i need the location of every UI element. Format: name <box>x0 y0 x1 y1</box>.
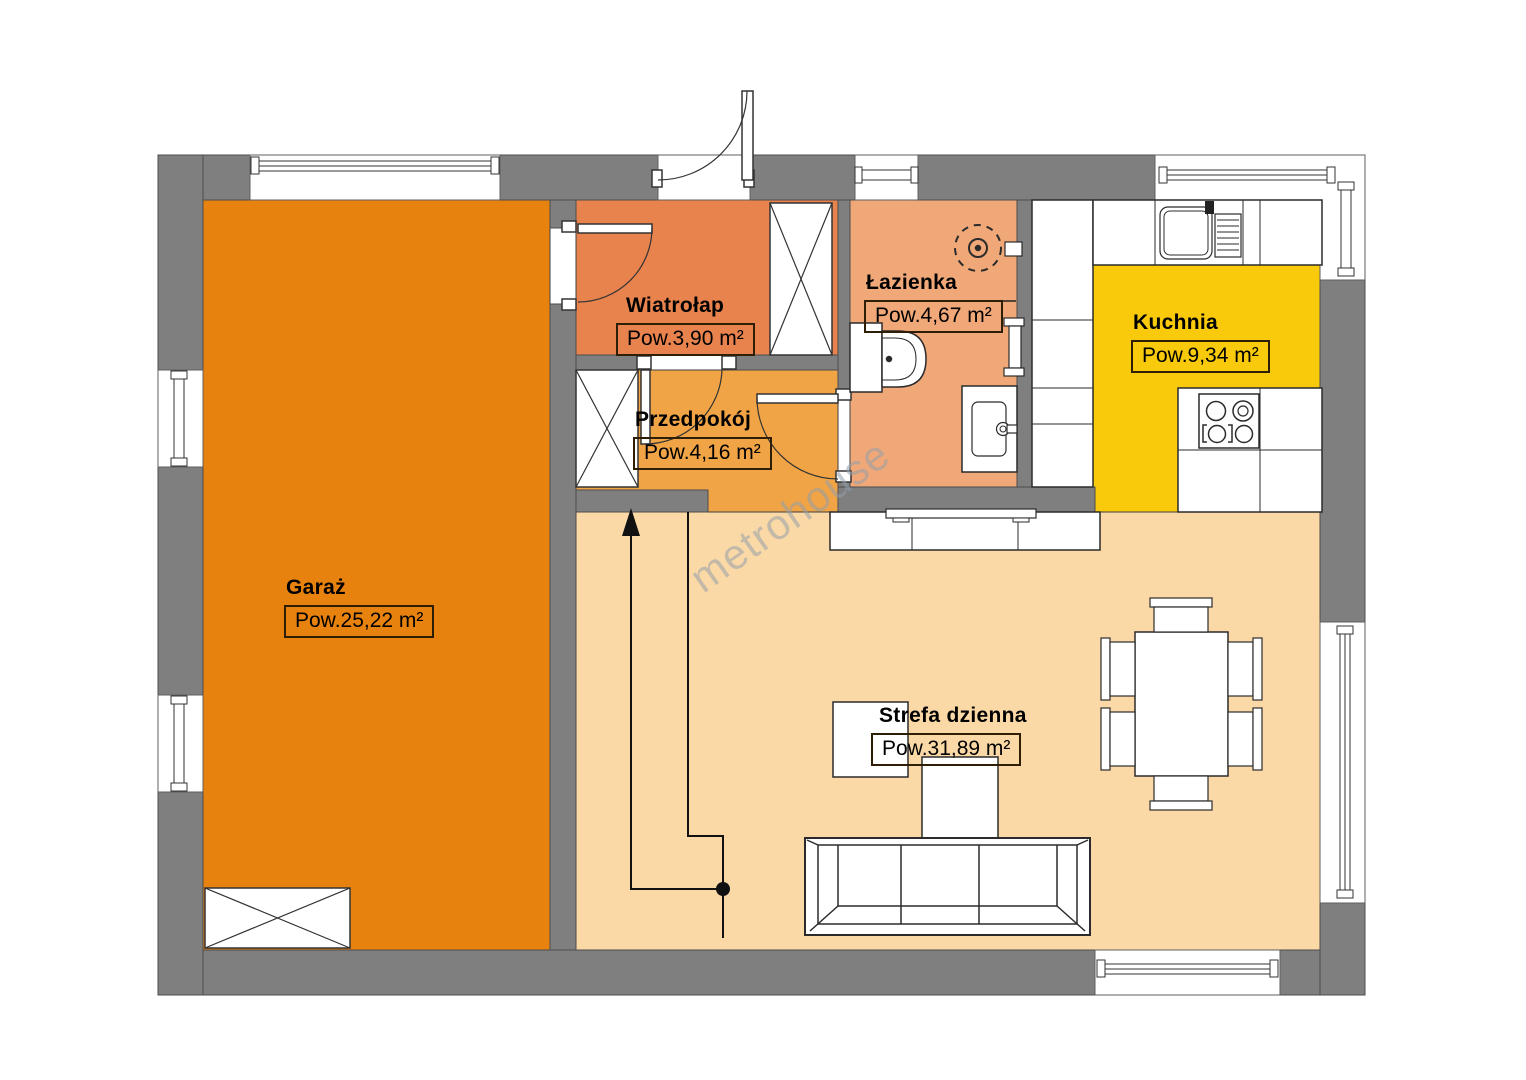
room-name: Strefa dzienna <box>879 704 1027 728</box>
window-living-right <box>1320 622 1365 903</box>
room-name: Przedpokój <box>635 408 772 432</box>
entrance-opening <box>658 155 750 200</box>
room-label-garaz: Garaż Pow.25,22 m² <box>284 576 434 638</box>
chair <box>1228 642 1253 696</box>
window-garage-left-1 <box>158 370 203 467</box>
garage-floor <box>203 200 550 950</box>
sofa <box>805 838 1090 935</box>
window-garage-top <box>250 155 500 200</box>
room-label-lazienka: Łazienka Pow.4,67 m² <box>864 271 1003 333</box>
chair <box>1101 708 1110 770</box>
room-area: Pow.9,34 m² <box>1131 340 1270 373</box>
room-name: Kuchnia <box>1133 311 1270 335</box>
window-garage-left-2 <box>158 695 203 792</box>
room-label-strefa-dzienna: Strefa dzienna Pow.31,89 m² <box>871 704 1027 766</box>
chair <box>1228 712 1253 766</box>
wall-nub <box>1005 242 1022 256</box>
room-area: Pow.3,90 m² <box>616 323 755 356</box>
room-label-kuchnia: Kuchnia Pow.9,34 m² <box>1131 311 1270 373</box>
hallway-wardrobe-x-box <box>576 370 638 487</box>
chair <box>1101 638 1110 700</box>
room-name: Wiatrołap <box>626 294 755 318</box>
room-area: Pow.4,16 m² <box>633 437 772 470</box>
room-area: Pow.4,67 m² <box>864 300 1003 333</box>
washbasin <box>962 386 1017 472</box>
kitchen-cabinet-column <box>1032 200 1093 487</box>
room-area: Pow.31,89 m² <box>871 733 1021 766</box>
cooktop <box>1199 394 1259 448</box>
path-dot <box>716 882 730 896</box>
garage-storage-x-box <box>205 888 350 948</box>
room-name: Garaż <box>286 576 434 600</box>
dining-table <box>1135 632 1228 776</box>
floor-plan: Garaż Pow.25,22 m² Wiatrołap Pow.3,90 m²… <box>0 0 1526 1080</box>
room-area: Pow.25,22 m² <box>284 605 434 638</box>
vestibule-wardrobe-x-box <box>770 203 832 355</box>
room-label-wiatrolap: Wiatrołap Pow.3,90 m² <box>616 294 755 356</box>
side-table <box>922 757 998 846</box>
chair <box>1150 598 1212 607</box>
window-bathroom-top <box>855 155 918 200</box>
room-label-przedpokoj: Przedpokój Pow.4,16 m² <box>633 408 772 470</box>
window-living-bottom <box>1095 950 1280 995</box>
room-name: Łazienka <box>866 271 1003 295</box>
chair <box>1154 776 1208 801</box>
